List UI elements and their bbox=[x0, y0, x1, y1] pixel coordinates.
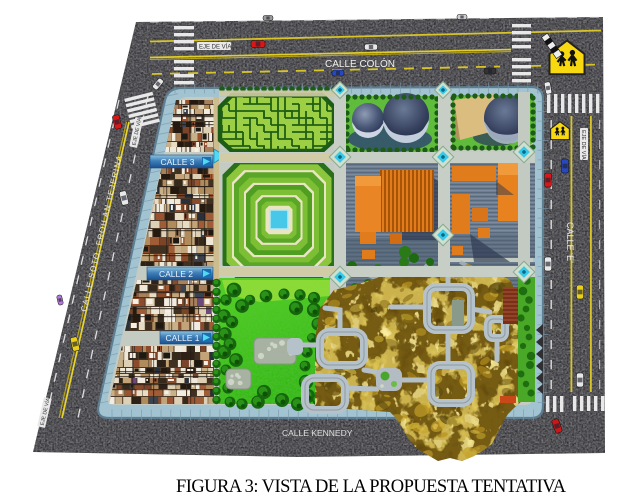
svg-text:FIGURA 3: VISTA DE LA PROPUEST: FIGURA 3: VISTA DE LA PROPUESTA TENTATIV… bbox=[176, 477, 567, 497]
svg-text:CALLE KENNEDY: CALLE KENNEDY bbox=[282, 428, 353, 438]
svg-text:EJE DE VÍA: EJE DE VÍA bbox=[199, 44, 231, 51]
svg-text:CALLE 1: CALLE 1 bbox=[165, 333, 199, 343]
svg-text:CALLE 3: CALLE 3 bbox=[160, 157, 194, 167]
svg-text:CALLE 2: CALLE 2 bbox=[159, 269, 193, 279]
svg-text:CALLE ‘E’: CALLE ‘E’ bbox=[565, 222, 575, 263]
svg-text:CALLE COLÓN: CALLE COLÓN bbox=[325, 57, 395, 70]
svg-text:EJE DE VÍA: EJE DE VÍA bbox=[580, 130, 587, 160]
